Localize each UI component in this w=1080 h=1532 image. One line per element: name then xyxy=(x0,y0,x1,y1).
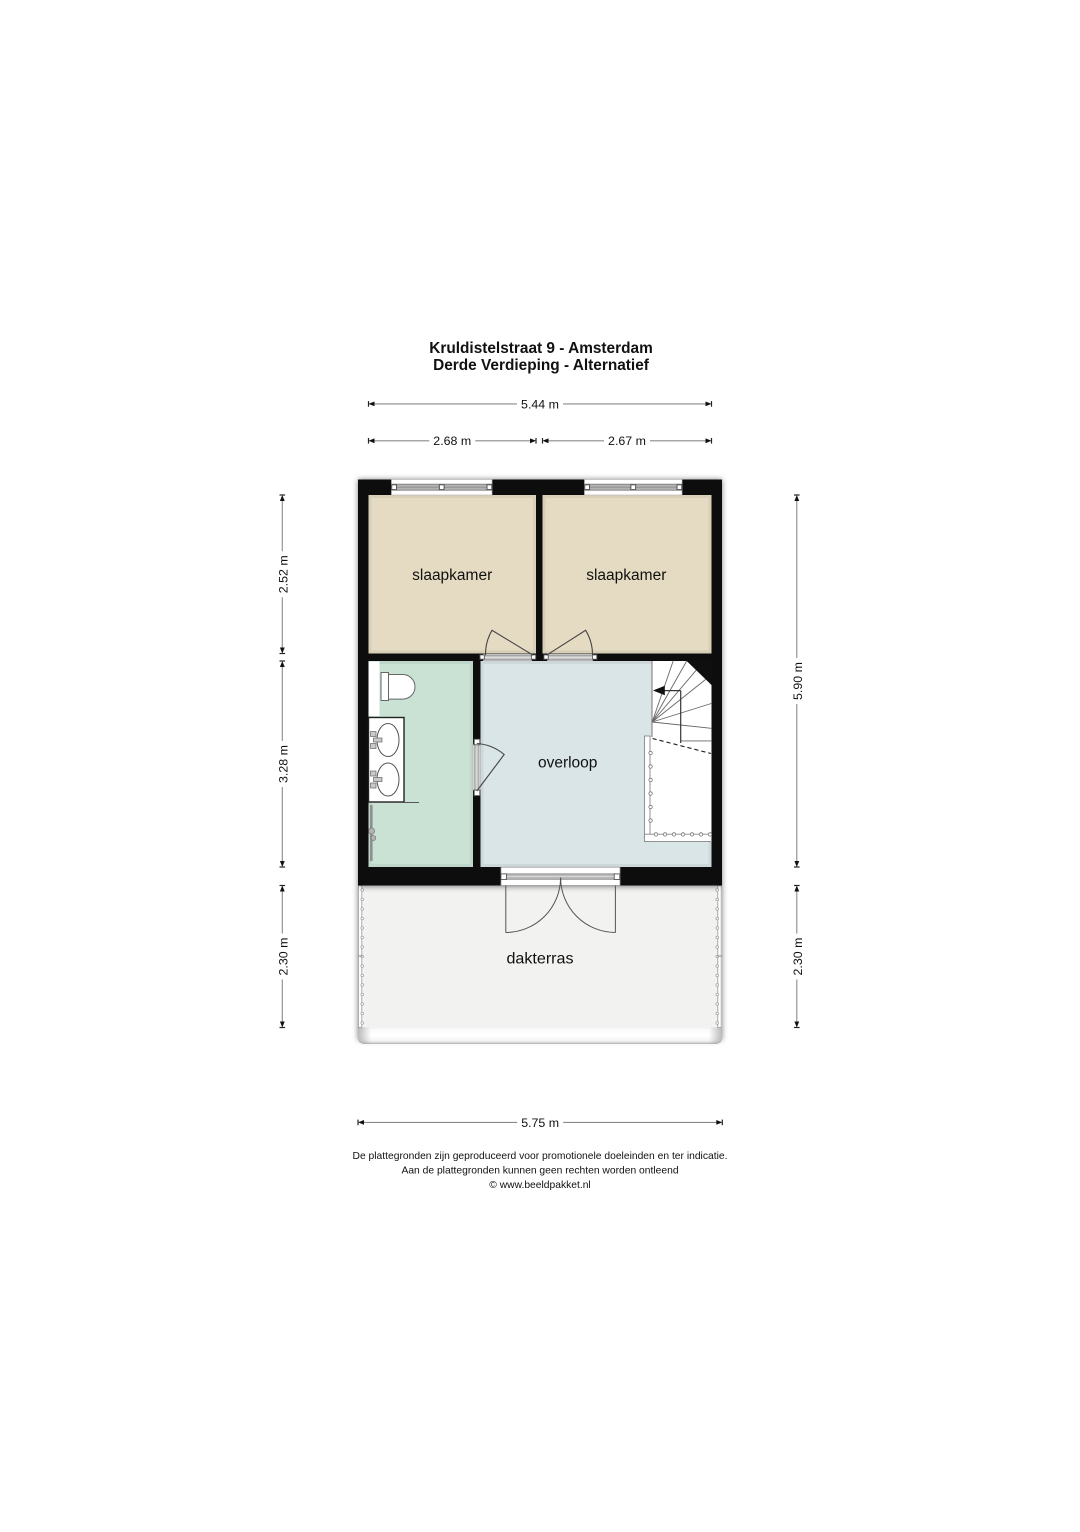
svg-text:2.30 m: 2.30 m xyxy=(276,938,290,976)
svg-text:Kruldistelstraat 9 - Amsterdam: Kruldistelstraat 9 - Amsterdam xyxy=(429,340,653,357)
svg-text:Derde Verdieping - Alternatief: Derde Verdieping - Alternatief xyxy=(433,357,650,374)
svg-text:dakterras: dakterras xyxy=(506,949,573,967)
svg-text:3.28 m: 3.28 m xyxy=(276,745,290,783)
svg-text:5.75 m: 5.75 m xyxy=(521,1116,559,1130)
svg-text:2.52 m: 2.52 m xyxy=(276,555,290,593)
svg-text:Aan de plattegronden kunnen ge: Aan de plattegronden kunnen geen rechten… xyxy=(401,1166,678,1177)
svg-text:slaapkamer: slaapkamer xyxy=(412,567,492,584)
svg-text:2.30 m: 2.30 m xyxy=(791,938,805,976)
svg-text:De plattegronden zijn geproduc: De plattegronden zijn geproduceerd voor … xyxy=(353,1151,728,1162)
svg-text:5.44 m: 5.44 m xyxy=(521,397,559,411)
svg-text:slaapkamer: slaapkamer xyxy=(586,567,666,584)
svg-text:5.90 m: 5.90 m xyxy=(791,662,805,700)
svg-text:2.68 m: 2.68 m xyxy=(433,434,471,448)
svg-text:overloop: overloop xyxy=(538,755,597,772)
svg-text:© www.beeldpakket.nl: © www.beeldpakket.nl xyxy=(489,1180,590,1191)
svg-text:2.67 m: 2.67 m xyxy=(608,434,646,448)
